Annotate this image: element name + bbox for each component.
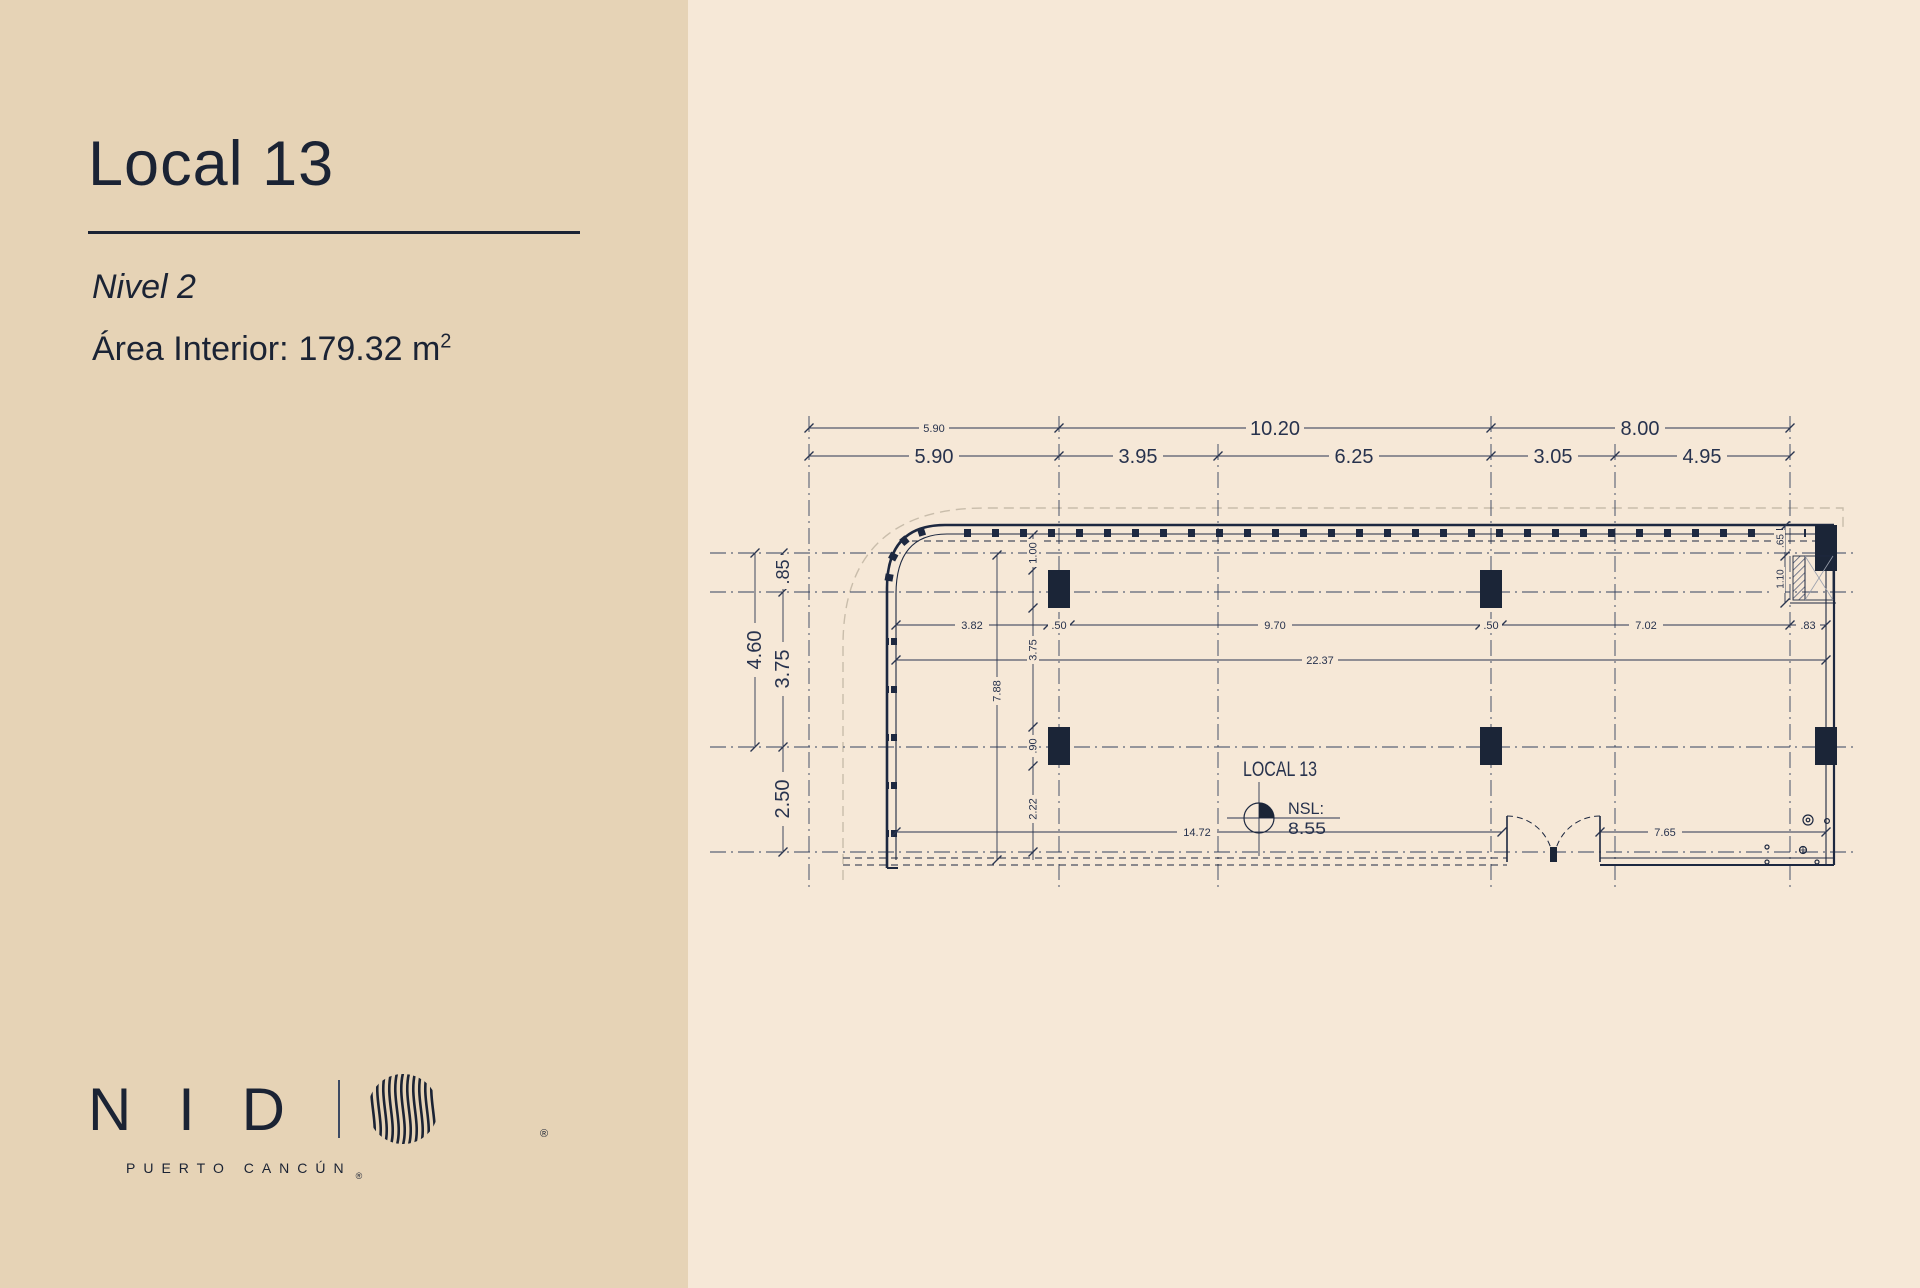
- dim-label: 5.90: [923, 423, 944, 435]
- dim-label: 9.70: [1264, 620, 1285, 632]
- nsl-value: 8.55: [1288, 819, 1326, 838]
- page-title: Local 13: [88, 128, 334, 200]
- area-label: Área Interior:179.32 m2: [92, 330, 451, 369]
- grid-lines: [710, 416, 1855, 890]
- dim-label: 3.05: [1534, 446, 1573, 468]
- dim-label: 3.82: [961, 620, 982, 632]
- brand-logo: NID ®: [88, 1072, 440, 1181]
- info-panel: Local 13 Nivel 2 Área Interior:179.32 m2…: [0, 0, 688, 1288]
- logo-divider: [338, 1080, 340, 1138]
- dim-label: 7.02: [1635, 620, 1656, 632]
- wall-mullions: [885, 527, 1806, 854]
- floor-plan: 5.90 10.20 8.00 5.90 3.95 6.25 3.05 4.95…: [600, 398, 1920, 918]
- dim-label: .50: [1483, 620, 1498, 632]
- title-underline: [88, 231, 580, 234]
- dim-label: 14.72: [1183, 827, 1211, 839]
- dim-label: 22.37: [1306, 655, 1334, 667]
- area-superscript: 2: [440, 331, 451, 353]
- registered-mark-icon: ®: [540, 1128, 548, 1140]
- dim-label: .83: [1800, 620, 1815, 632]
- nsl-level-marker: LOCAL 13 NSL: 8.55: [1227, 758, 1340, 856]
- dim-label: 7.65: [1654, 827, 1675, 839]
- dim-label: 10.20: [1250, 418, 1300, 440]
- floor-plan-drawing: 5.90 10.20 8.00 5.90 3.95 6.25 3.05 4.95…: [600, 398, 1920, 918]
- dim-label: .50: [1051, 620, 1066, 632]
- dim-label: 3.95: [1119, 446, 1158, 468]
- dim-label: 8.00: [1621, 418, 1660, 440]
- dim-label: 2.22: [1028, 798, 1040, 819]
- wave-circle-icon: [366, 1072, 440, 1146]
- logo-wordmark: NID: [88, 1075, 332, 1144]
- logo-subtitle: PUERTO CANCÚN®: [126, 1160, 440, 1181]
- nsl-label: NSL:: [1288, 799, 1324, 818]
- dim-label: 1.00: [1028, 542, 1040, 563]
- dim-label: 5.90: [915, 446, 954, 468]
- dim-label: .85: [773, 559, 793, 584]
- area-value: 179.32 m: [299, 330, 441, 368]
- dim-label: 3.75: [772, 650, 794, 689]
- dim-label: .90: [1028, 738, 1040, 753]
- entrance-door: [1507, 816, 1600, 862]
- dashed-edge-lines: [843, 541, 1828, 865]
- dim-label: 3.75: [1028, 639, 1040, 660]
- local-label: LOCAL 13: [1243, 758, 1317, 781]
- structural-columns: [1048, 525, 1837, 765]
- dim-label: 4.95: [1683, 446, 1722, 468]
- area-label-text: Área Interior:: [92, 330, 289, 368]
- dimension-lines: [755, 428, 1790, 860]
- level-label: Nivel 2: [92, 268, 196, 307]
- dim-label: 4.60: [744, 631, 766, 670]
- dim-label: 6.25: [1335, 446, 1374, 468]
- dim-label: .65: [1776, 534, 1787, 548]
- dim-label: 2.50: [772, 780, 794, 819]
- page: Local 13 Nivel 2 Área Interior:179.32 m2…: [0, 0, 1920, 1288]
- dim-label: 1.10: [1776, 569, 1787, 589]
- registered-mark-icon: ®: [356, 1171, 363, 1181]
- dim-label: 7.88: [992, 680, 1004, 701]
- utility-circles: [1765, 815, 1829, 864]
